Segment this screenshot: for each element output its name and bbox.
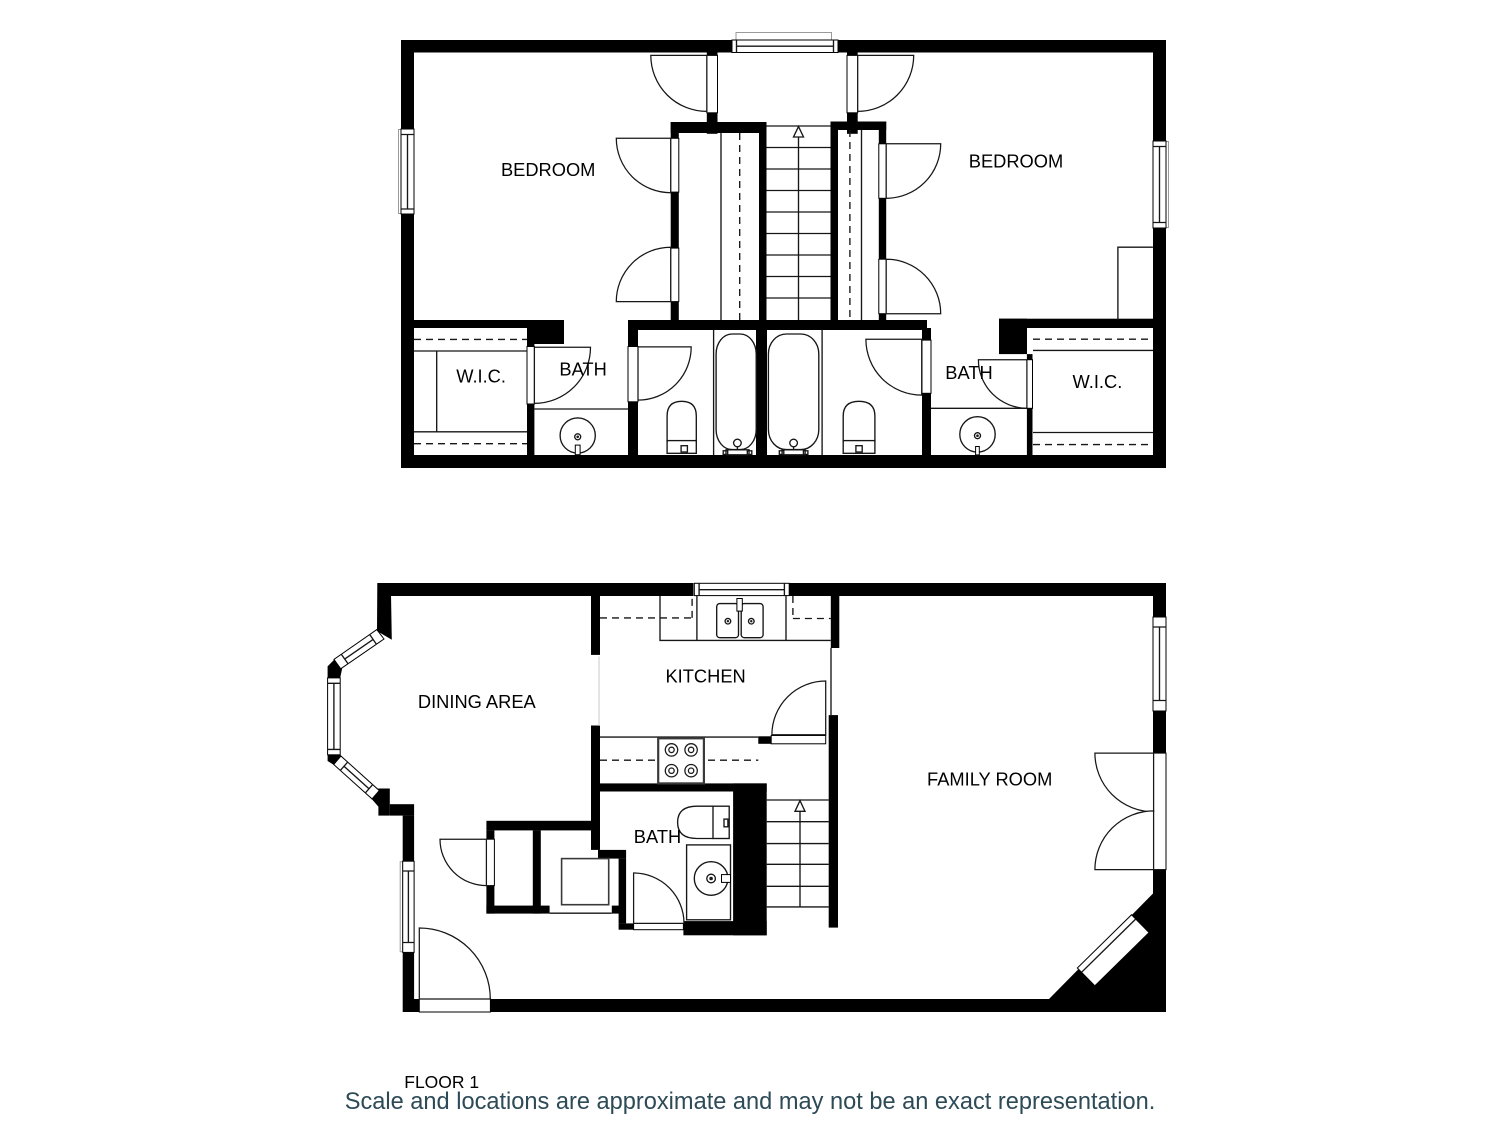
svg-text:BEDROOM: BEDROOM — [501, 159, 595, 180]
svg-text:W.I.C.: W.I.C. — [1073, 371, 1123, 392]
svg-text:DINING AREA: DINING AREA — [418, 691, 537, 712]
svg-text:BEDROOM: BEDROOM — [969, 151, 1063, 172]
svg-text:BATH: BATH — [559, 358, 606, 379]
svg-text:BATH: BATH — [945, 362, 992, 383]
svg-text:Scale and locations are approx: Scale and locations are approximate and … — [345, 1089, 1156, 1115]
svg-text:BATH: BATH — [634, 826, 681, 847]
svg-text:W.I.C.: W.I.C. — [456, 366, 506, 387]
svg-text:KITCHEN: KITCHEN — [665, 666, 745, 687]
svg-text:FAMILY ROOM: FAMILY ROOM — [927, 769, 1052, 790]
